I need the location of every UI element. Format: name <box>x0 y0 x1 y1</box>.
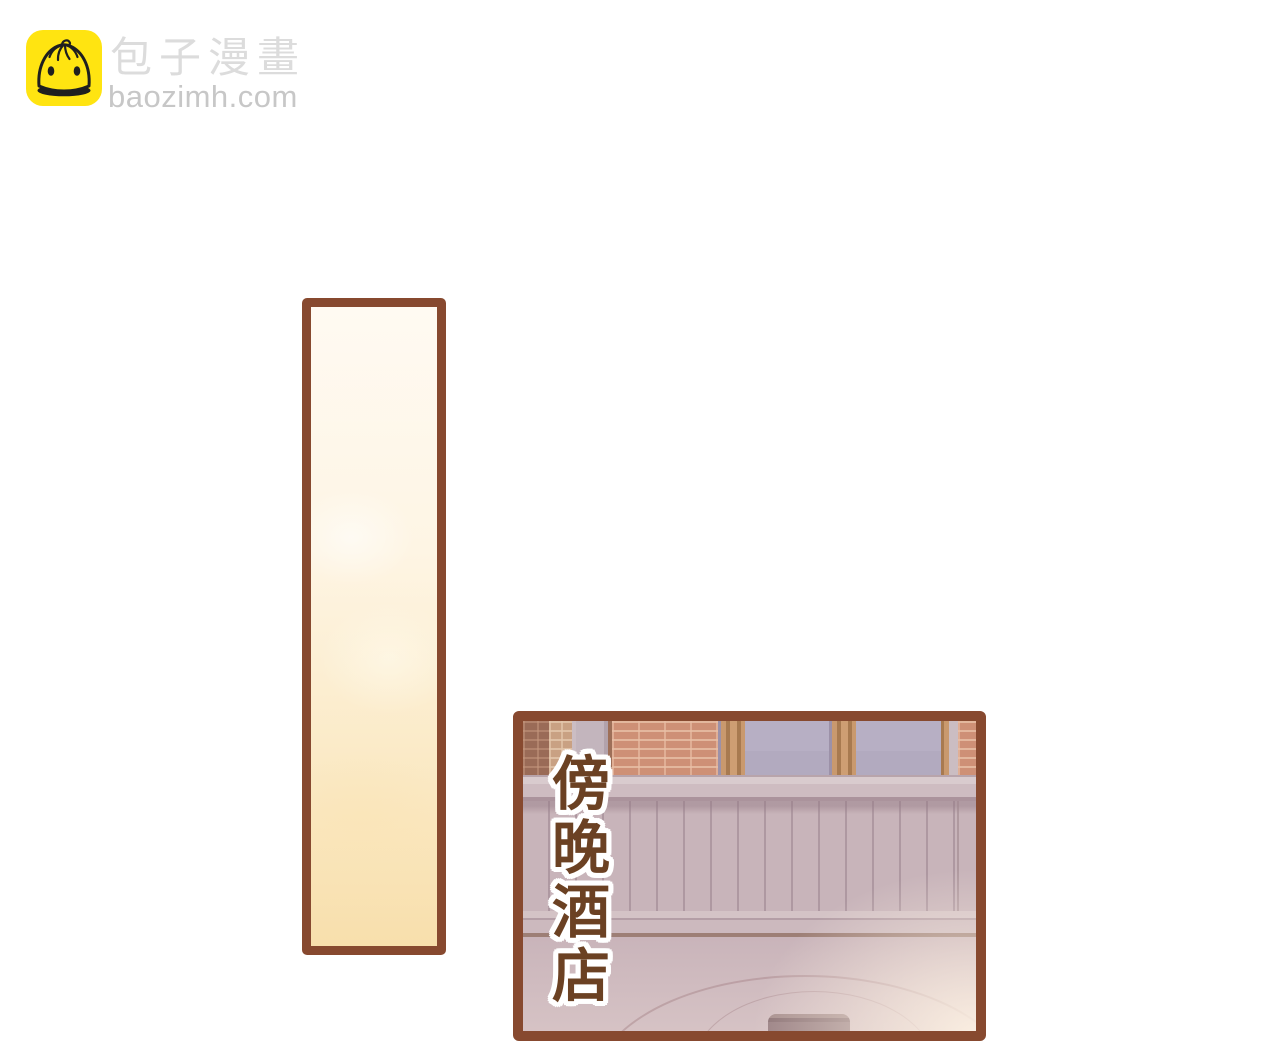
wood-post <box>718 721 745 775</box>
wood-post <box>829 721 856 775</box>
wood-post-edge <box>941 721 958 775</box>
brick-wall <box>612 721 718 775</box>
window <box>745 721 829 775</box>
comic-panel-blank <box>302 298 446 955</box>
comic-panel-scene: 傍 晚 酒 店 <box>513 711 986 1041</box>
baozi-bun-icon <box>26 30 102 106</box>
site-watermark: 包子漫畫 baozimh.com <box>0 0 420 130</box>
caption-char: 傍 <box>552 753 610 817</box>
window <box>856 721 941 775</box>
caption-char: 晚 <box>552 817 610 881</box>
corner-dark-brick <box>523 721 549 775</box>
caption-char: 酒 <box>552 881 610 945</box>
caption-vertical-text: 傍 晚 酒 店 <box>549 753 613 1009</box>
site-name: 包子漫畫 <box>110 36 306 80</box>
caption-char: 店 <box>552 945 610 1009</box>
brick-wall-right <box>958 721 976 775</box>
site-domain: baozimh.com <box>108 80 298 113</box>
